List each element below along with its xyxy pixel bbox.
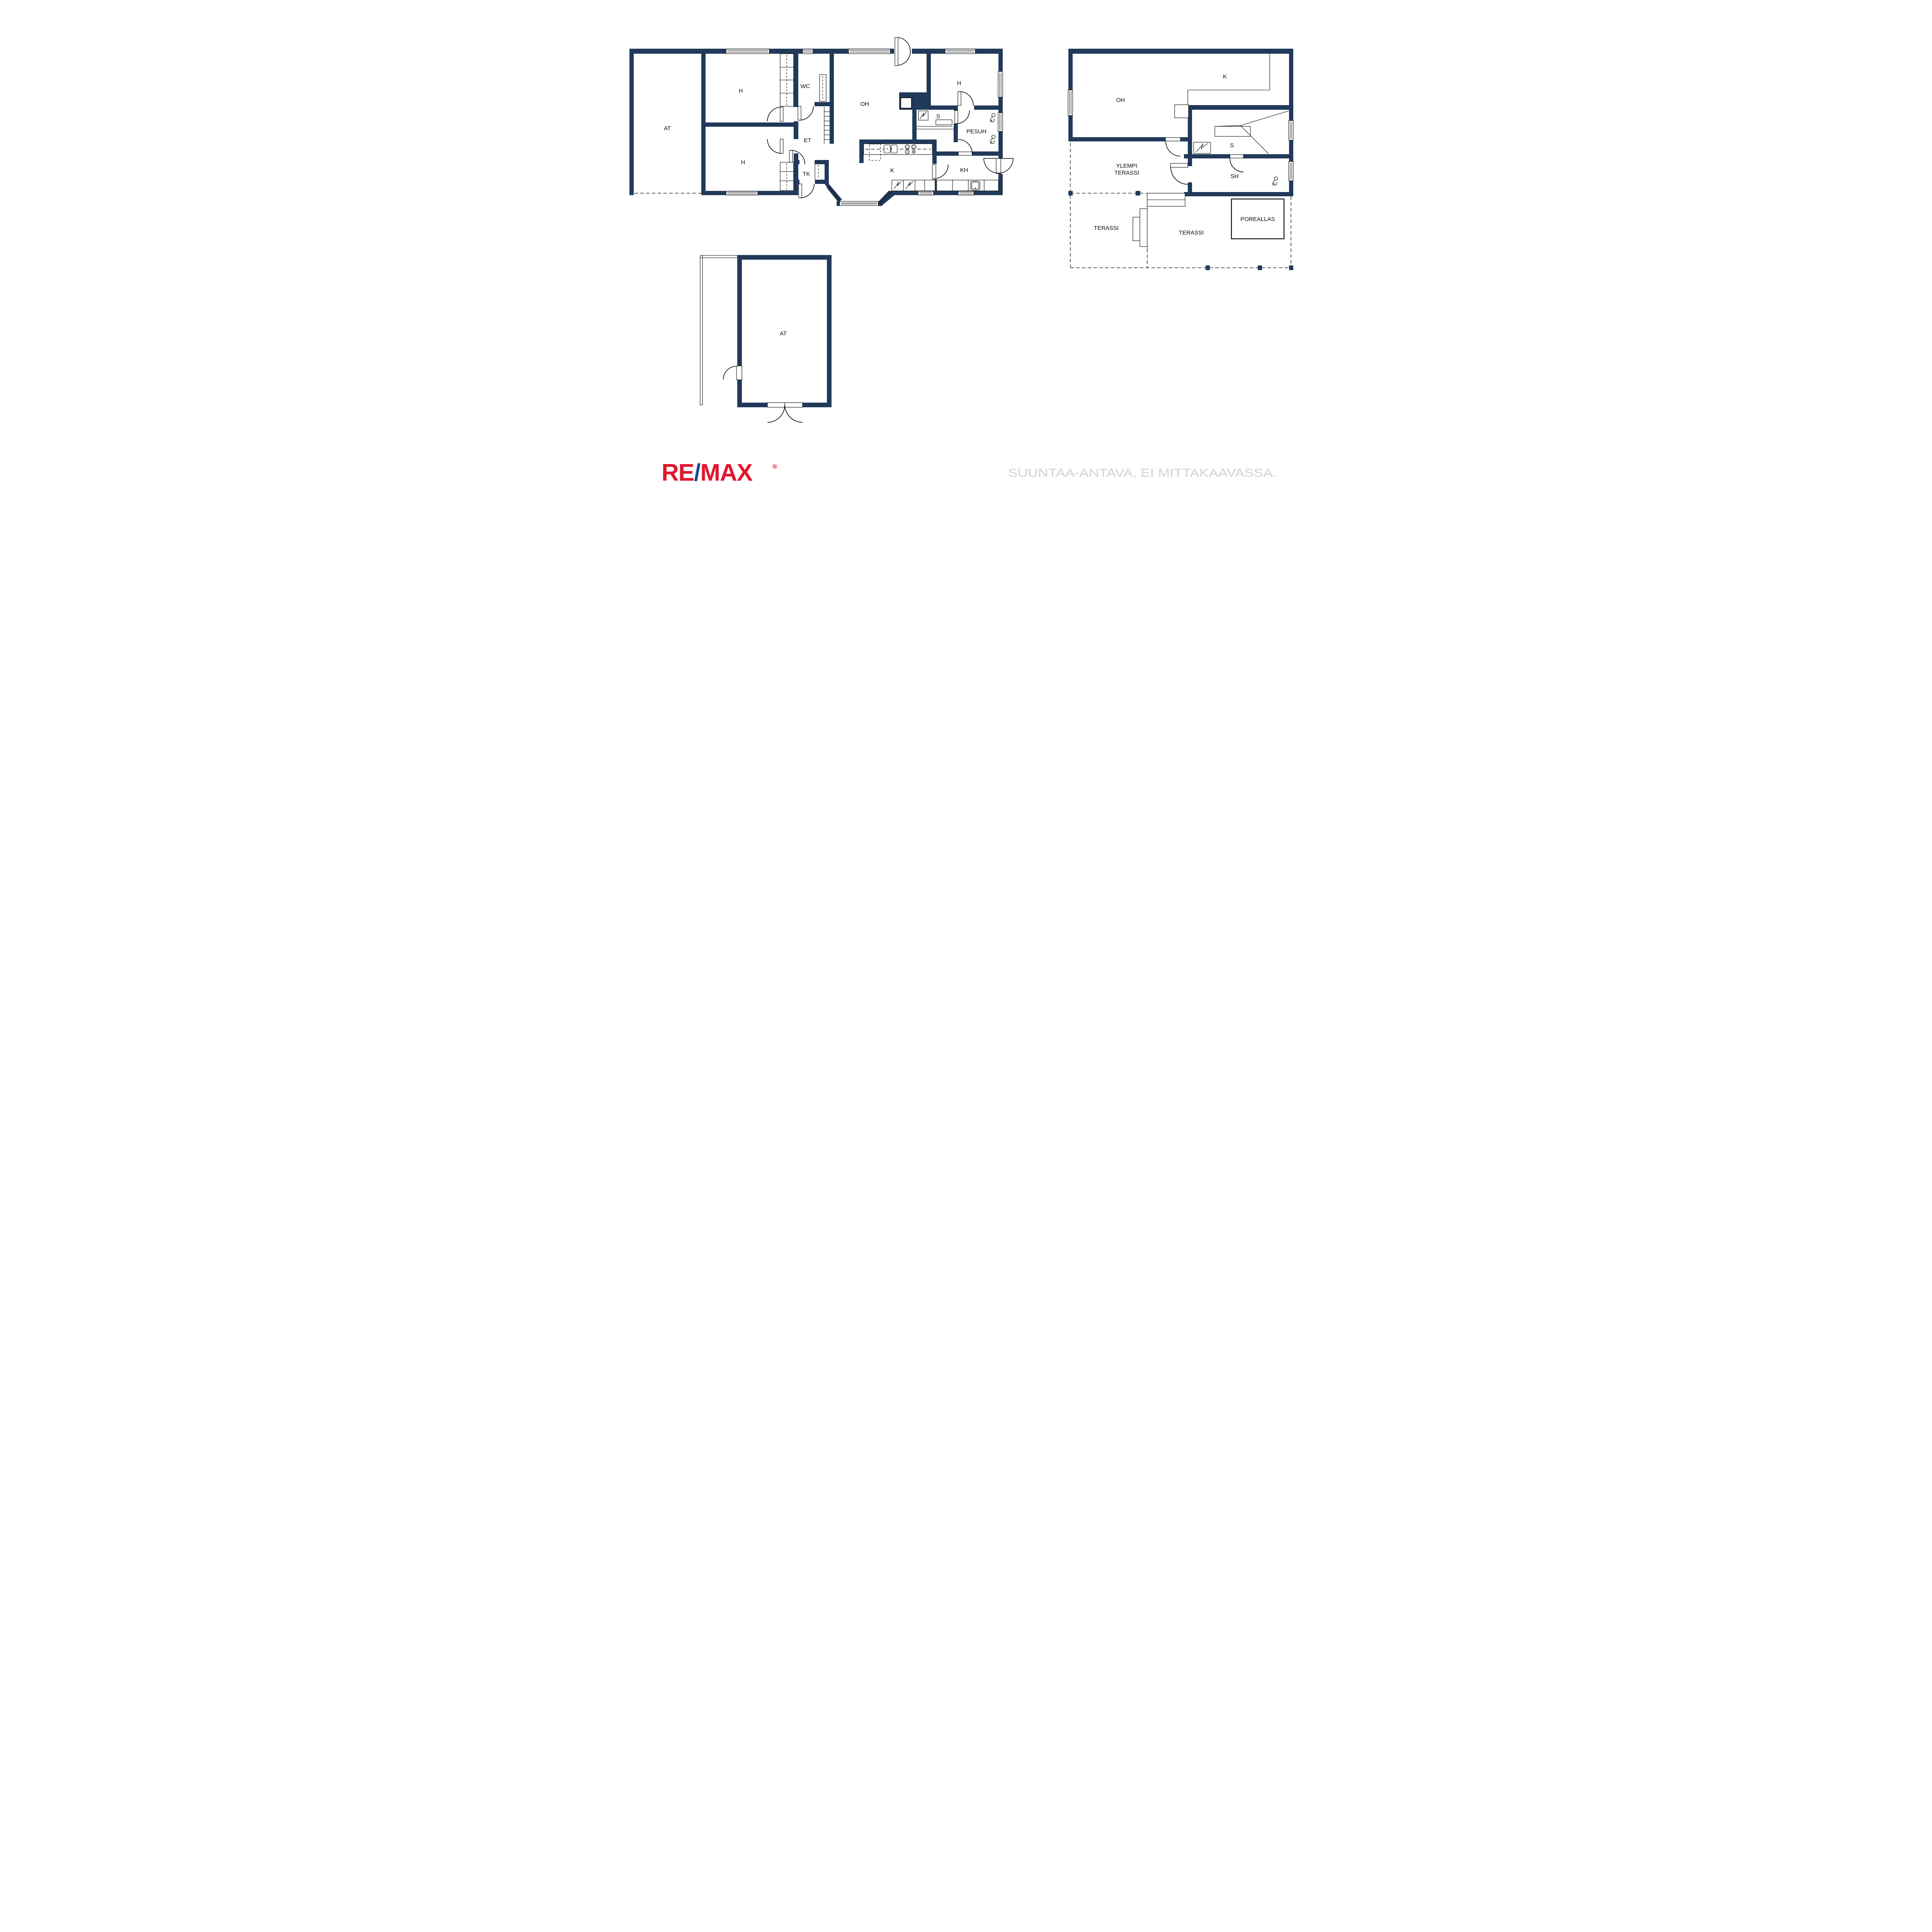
window-icon bbox=[945, 49, 975, 54]
fireplace-icon bbox=[899, 92, 927, 110]
basin-icon bbox=[971, 181, 980, 190]
terrace-steps bbox=[1147, 193, 1185, 206]
post bbox=[1136, 191, 1140, 196]
door-pesuh-kh bbox=[958, 139, 972, 155]
door-tk-exterior bbox=[799, 184, 814, 198]
wc-cabinet bbox=[820, 75, 826, 101]
upper-floor-fixtures bbox=[1068, 142, 1293, 270]
terrace-railing bbox=[1140, 209, 1147, 247]
door-k-kh bbox=[932, 165, 948, 179]
door-h1 bbox=[767, 107, 783, 121]
terrace-label-mid: TERASSI bbox=[1179, 230, 1203, 236]
room-label-oh: OH bbox=[860, 101, 869, 107]
terrace-label-left: TERASSI bbox=[1094, 225, 1118, 231]
door-terrace-stairhall bbox=[1170, 163, 1188, 184]
main-floor-door-gaps bbox=[780, 48, 1003, 184]
terrace-label-upper-2: TERASSI bbox=[1114, 170, 1139, 176]
post bbox=[1258, 265, 1262, 270]
carport-outline bbox=[700, 255, 737, 405]
room-label-h3: H bbox=[957, 80, 961, 87]
disclaimer-text: SUUNTAA-ANTAVA, EI MITTAKAAVASSA. bbox=[1008, 466, 1277, 480]
post bbox=[1206, 265, 1210, 270]
sauna-benches bbox=[917, 120, 954, 129]
stairs-icon bbox=[824, 107, 830, 144]
garage-double-door bbox=[767, 403, 803, 422]
post bbox=[1289, 265, 1293, 270]
window-icon bbox=[1289, 162, 1293, 181]
floor-plan-page: AT H H WC ET TK OH H K S PESUH KH bbox=[613, 0, 1319, 499]
closet-h1 bbox=[780, 54, 794, 106]
shower-icon bbox=[1272, 177, 1278, 186]
sauna-stove-icon bbox=[918, 111, 928, 120]
registered-trademark-symbol: ® bbox=[772, 463, 777, 470]
double-door-kh-exterior bbox=[984, 158, 1013, 173]
garage-side-door bbox=[723, 366, 742, 380]
door-oh-terrace bbox=[1165, 138, 1180, 156]
room-label-s: S bbox=[936, 113, 940, 120]
door-h2 bbox=[767, 139, 783, 153]
terrace-label-upper-1: YLEMPI bbox=[1116, 163, 1137, 169]
room-label-pesuh: PESUH bbox=[966, 128, 986, 135]
room-label-s2: S bbox=[1230, 142, 1233, 149]
shower-icon bbox=[990, 135, 995, 144]
main-floor-fixtures bbox=[634, 54, 998, 193]
upper-floor-walls bbox=[1068, 49, 1293, 196]
room-label-h1: H bbox=[738, 88, 743, 94]
room-label-garage-at: AT bbox=[779, 330, 786, 337]
window-icon bbox=[849, 49, 890, 54]
kh-counter-row bbox=[937, 180, 998, 191]
door-s-pesuh bbox=[955, 111, 969, 124]
window-icon bbox=[726, 191, 758, 195]
k-appliance-row bbox=[892, 180, 935, 191]
room-label-sh: SH bbox=[1230, 173, 1238, 180]
main-floor-plan: AT H H WC ET TK OH H K S PESUH KH bbox=[629, 37, 1013, 206]
window-icon bbox=[918, 191, 934, 195]
kitchen-counter bbox=[864, 144, 932, 160]
garage-plan: AT bbox=[700, 255, 832, 422]
room-label-tk: TK bbox=[803, 171, 810, 177]
door-h3-pesuh bbox=[958, 92, 973, 105]
room-label-kh: KH bbox=[960, 167, 968, 173]
room-label-wc: WC bbox=[800, 83, 810, 90]
window-icon bbox=[1068, 90, 1073, 116]
window-icon bbox=[998, 113, 1003, 131]
window-icon bbox=[998, 71, 1003, 97]
room-label-oh2: OH bbox=[1116, 97, 1125, 104]
shower-icon bbox=[990, 114, 995, 122]
footer: RE/MAX ® SUUNTAA-ANTAVA, EI MITTAKAAVASS… bbox=[662, 459, 1277, 486]
chimney bbox=[1175, 105, 1189, 118]
terrace-railing bbox=[1133, 217, 1140, 241]
sauna-stove-icon bbox=[1194, 142, 1211, 153]
room-label-k: K bbox=[890, 167, 894, 174]
window-icon bbox=[726, 49, 769, 54]
remax-logo: RE/MAX bbox=[662, 459, 753, 486]
room-label-k2: K bbox=[1223, 73, 1226, 80]
door-s-sh bbox=[1230, 155, 1243, 172]
room-label-at: AT bbox=[663, 125, 670, 132]
post bbox=[1068, 191, 1073, 196]
door-wc bbox=[798, 106, 813, 120]
window-icon bbox=[803, 49, 813, 54]
window-icon bbox=[958, 191, 974, 195]
room-label-poreallas: POREALLAS bbox=[1240, 216, 1275, 223]
upper-floor-plan: OH K S SH YLEMPI TERASSI TERASSI TERASSI… bbox=[1068, 49, 1293, 270]
floor-plan-image: AT H H WC ET TK OH H K S PESUH KH bbox=[613, 0, 1319, 499]
window-icon bbox=[1289, 121, 1293, 140]
closet-h2 bbox=[780, 162, 794, 190]
room-label-h2: H bbox=[741, 159, 745, 166]
room-label-et: ET bbox=[804, 137, 811, 144]
